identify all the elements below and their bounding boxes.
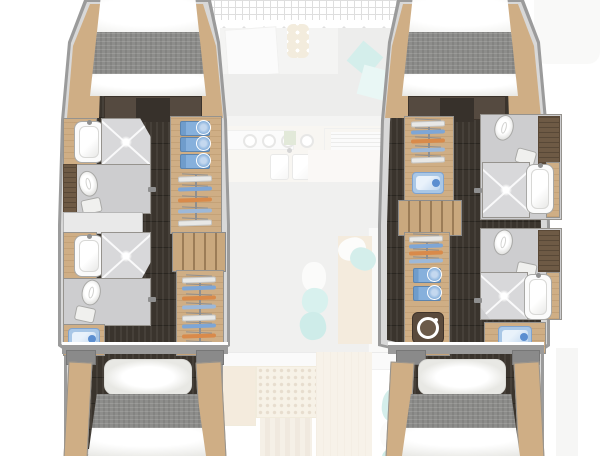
door-handle (148, 297, 156, 302)
port-fwd-hanging-rack (176, 172, 214, 228)
starboard-aft-hanging-rack (407, 234, 445, 264)
door-handle (474, 188, 482, 193)
port-aft-washbasin (74, 235, 104, 277)
starboard-aft-side-board-right (514, 361, 545, 456)
shower-drain-icon (498, 290, 510, 302)
berth-duvet (88, 428, 206, 456)
burner-icon (262, 134, 276, 148)
foredeck-panel (534, 0, 600, 64)
cockpit-grate (256, 366, 320, 418)
clothes-hanger (176, 207, 214, 215)
shower-drain-icon (120, 136, 132, 148)
clothes-hanger (409, 128, 447, 136)
clothes-hanger (176, 185, 214, 193)
forward-sunpad-tray (287, 24, 309, 58)
starboard-fwd-hanging-rack (409, 119, 447, 163)
clothes-hanger (176, 218, 214, 226)
port-berth-step (136, 98, 170, 122)
door-handle (474, 298, 482, 303)
starboard-fwd-shelf (538, 116, 560, 164)
floor-plan (0, 0, 608, 456)
clothes-hanger (180, 294, 218, 302)
faucet-icon (287, 148, 292, 153)
port-aft-toilet (76, 278, 127, 326)
toilet-bowl (491, 228, 515, 257)
towel (180, 137, 210, 152)
burner-icon (243, 134, 257, 148)
clothes-hanger (409, 119, 447, 127)
starboard-aft-shower (480, 272, 528, 320)
galley-sink (268, 152, 310, 180)
berth-blanket (402, 32, 518, 78)
clothes-hanger (176, 196, 214, 204)
clothes-hanger (180, 275, 218, 283)
port-fwd-washbasin (74, 121, 104, 163)
drawer-accessory (412, 172, 444, 194)
clothes-hanger (409, 146, 447, 154)
berth-blanket (402, 394, 520, 432)
starboard-fwd-shower (482, 162, 530, 218)
washing-machine (412, 312, 444, 344)
stove-burners (243, 134, 314, 148)
berth-duvet-foot (90, 74, 206, 96)
starboard-forward-berth (402, 0, 518, 96)
port-aft-side-board-left (64, 361, 93, 456)
port-aft-berth (88, 356, 206, 456)
shower-drain-icon (500, 184, 512, 196)
clothes-hanger (409, 155, 447, 163)
berth-duvet (402, 428, 520, 456)
forward-cockpit-table (224, 26, 279, 78)
starboard-side-deck (556, 348, 578, 456)
cockpit-bench (220, 366, 256, 426)
clothes-hanger (176, 174, 214, 182)
shower-drain-icon (120, 250, 132, 262)
sink-bowls (270, 154, 311, 180)
port-towel-shelves (176, 120, 214, 170)
starboard-companionway-steps (398, 200, 462, 236)
starboard-aft-washbasin (524, 274, 552, 320)
cockpit-table (316, 352, 372, 456)
berth-pillow (104, 359, 192, 395)
towel (413, 286, 441, 301)
cockpit-mat (260, 418, 312, 456)
clothes-hanger (180, 303, 218, 311)
port-fwd-dresser (63, 212, 143, 234)
door-handle (148, 187, 156, 192)
berth-blanket (88, 394, 206, 432)
towel (180, 154, 210, 169)
starboard-towel-shelves (409, 266, 445, 302)
starboard-aft-berth (402, 356, 520, 456)
port-aft-shower (101, 232, 151, 280)
toilet-bowl (76, 169, 100, 198)
clothes-hanger (180, 322, 218, 330)
towel (180, 121, 210, 136)
berth-blanket (90, 32, 206, 78)
clothes-hanger (409, 137, 447, 145)
burner-icon (300, 134, 314, 148)
port-fwd-shelf (63, 164, 77, 214)
port-companionway-steps (172, 232, 226, 272)
port-aft-hanging-rack (180, 274, 218, 350)
sink-bowl-icon (270, 154, 289, 180)
starboard-fwd-washbasin (526, 164, 554, 214)
clothes-hanger (407, 257, 445, 265)
galley-herb-tray (284, 131, 296, 145)
towel (413, 268, 441, 283)
port-fwd-shower (101, 118, 151, 166)
berth-pillow (418, 359, 506, 395)
clothes-hanger (180, 313, 218, 321)
berth-duvet-foot (402, 74, 518, 96)
clothes-hanger (180, 332, 218, 340)
clothes-hanger (180, 284, 218, 292)
port-forward-berth (90, 0, 206, 96)
toilet-bowl (79, 278, 103, 307)
